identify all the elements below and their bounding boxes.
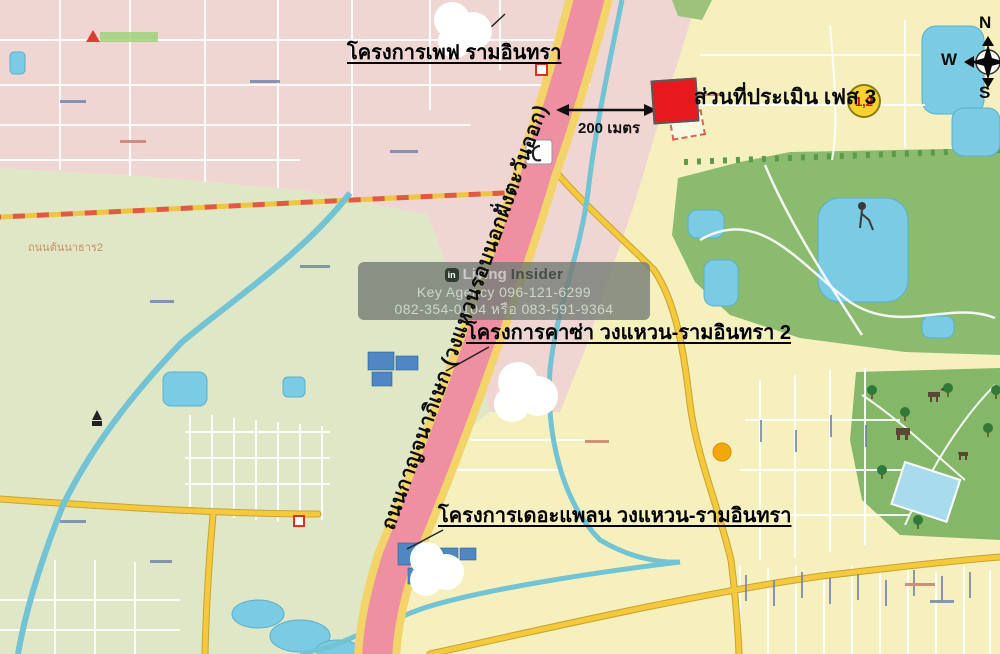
- compass-west-label: W: [941, 50, 957, 70]
- compass-rose-icon: [956, 28, 1000, 96]
- label-street-left: ถนนต้นนาธาร2: [28, 238, 103, 256]
- label-project-theplan: โครงการเดอะแพลน วงแหวน-รามอินทรา: [438, 505, 791, 527]
- evaluated-site-marker: [651, 77, 700, 124]
- label-evaluated-area: ส่วนที่ประเมิน เฟส 3: [694, 81, 876, 114]
- label-project-pave: โครงการเพฟ รามอินทรา: [347, 42, 561, 64]
- compass-north-label: N: [979, 13, 991, 33]
- white-blob: [406, 540, 466, 598]
- temple-marker-icon: [294, 516, 304, 526]
- orange-dot-marker: [713, 443, 731, 461]
- watermark-phone-line-1: Key Agency 096-121-6299: [358, 284, 650, 301]
- watermark-brand-insider: Insider: [511, 266, 564, 284]
- watermark: in Living Insider Key Agency 096-121-629…: [358, 262, 650, 320]
- label-project-casa: โครงการคาซ่า วงแหวน-รามอินทรา 2: [466, 322, 791, 344]
- label-distance-200m: 200 เมตร: [578, 116, 640, 140]
- watermark-phone-line-2: 082-354-0104 หรือ 083-591-9364: [358, 301, 650, 318]
- white-blob: [492, 360, 560, 424]
- site-marker-icon: [536, 64, 547, 75]
- map-canvas: โครงการเพฟ รามอินทรา โครงการคาซ่า วงแหวน…: [0, 0, 1000, 654]
- living-insider-logo-icon: in: [445, 268, 459, 282]
- school-label-block: [100, 32, 158, 42]
- compass-south-label: S: [979, 83, 990, 103]
